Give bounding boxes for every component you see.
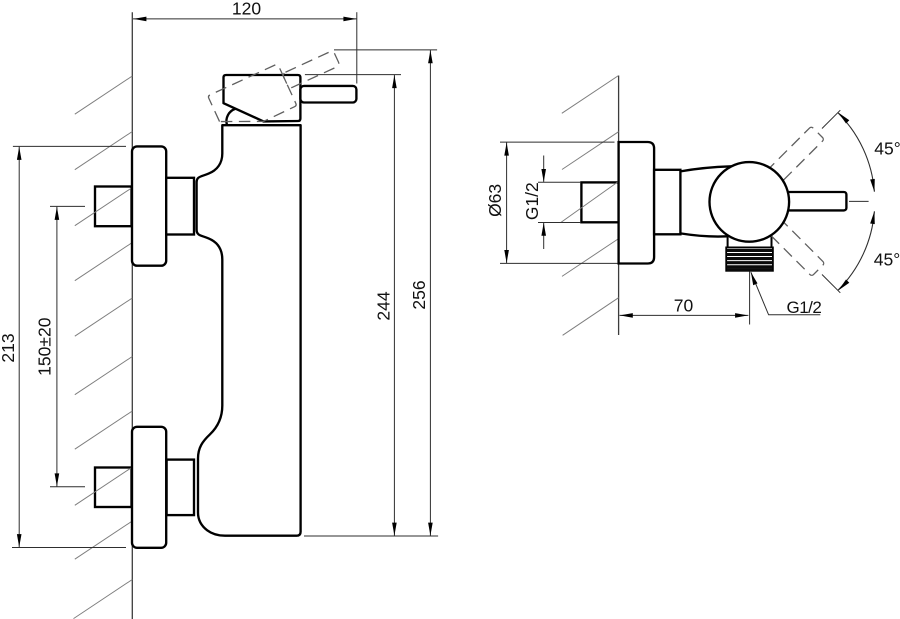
svg-text:244: 244 [374, 291, 394, 320]
svg-text:70: 70 [674, 296, 694, 316]
svg-text:120: 120 [232, 0, 261, 18]
svg-text:G1/2: G1/2 [522, 182, 542, 220]
svg-text:45°: 45° [874, 250, 900, 270]
svg-text:45°: 45° [874, 139, 900, 159]
svg-text:150±20: 150±20 [35, 317, 55, 376]
svg-text:256: 256 [409, 280, 429, 309]
svg-text:213: 213 [0, 333, 18, 362]
svg-text:Ø63: Ø63 [485, 184, 505, 217]
svg-text:G1/2: G1/2 [787, 298, 822, 317]
